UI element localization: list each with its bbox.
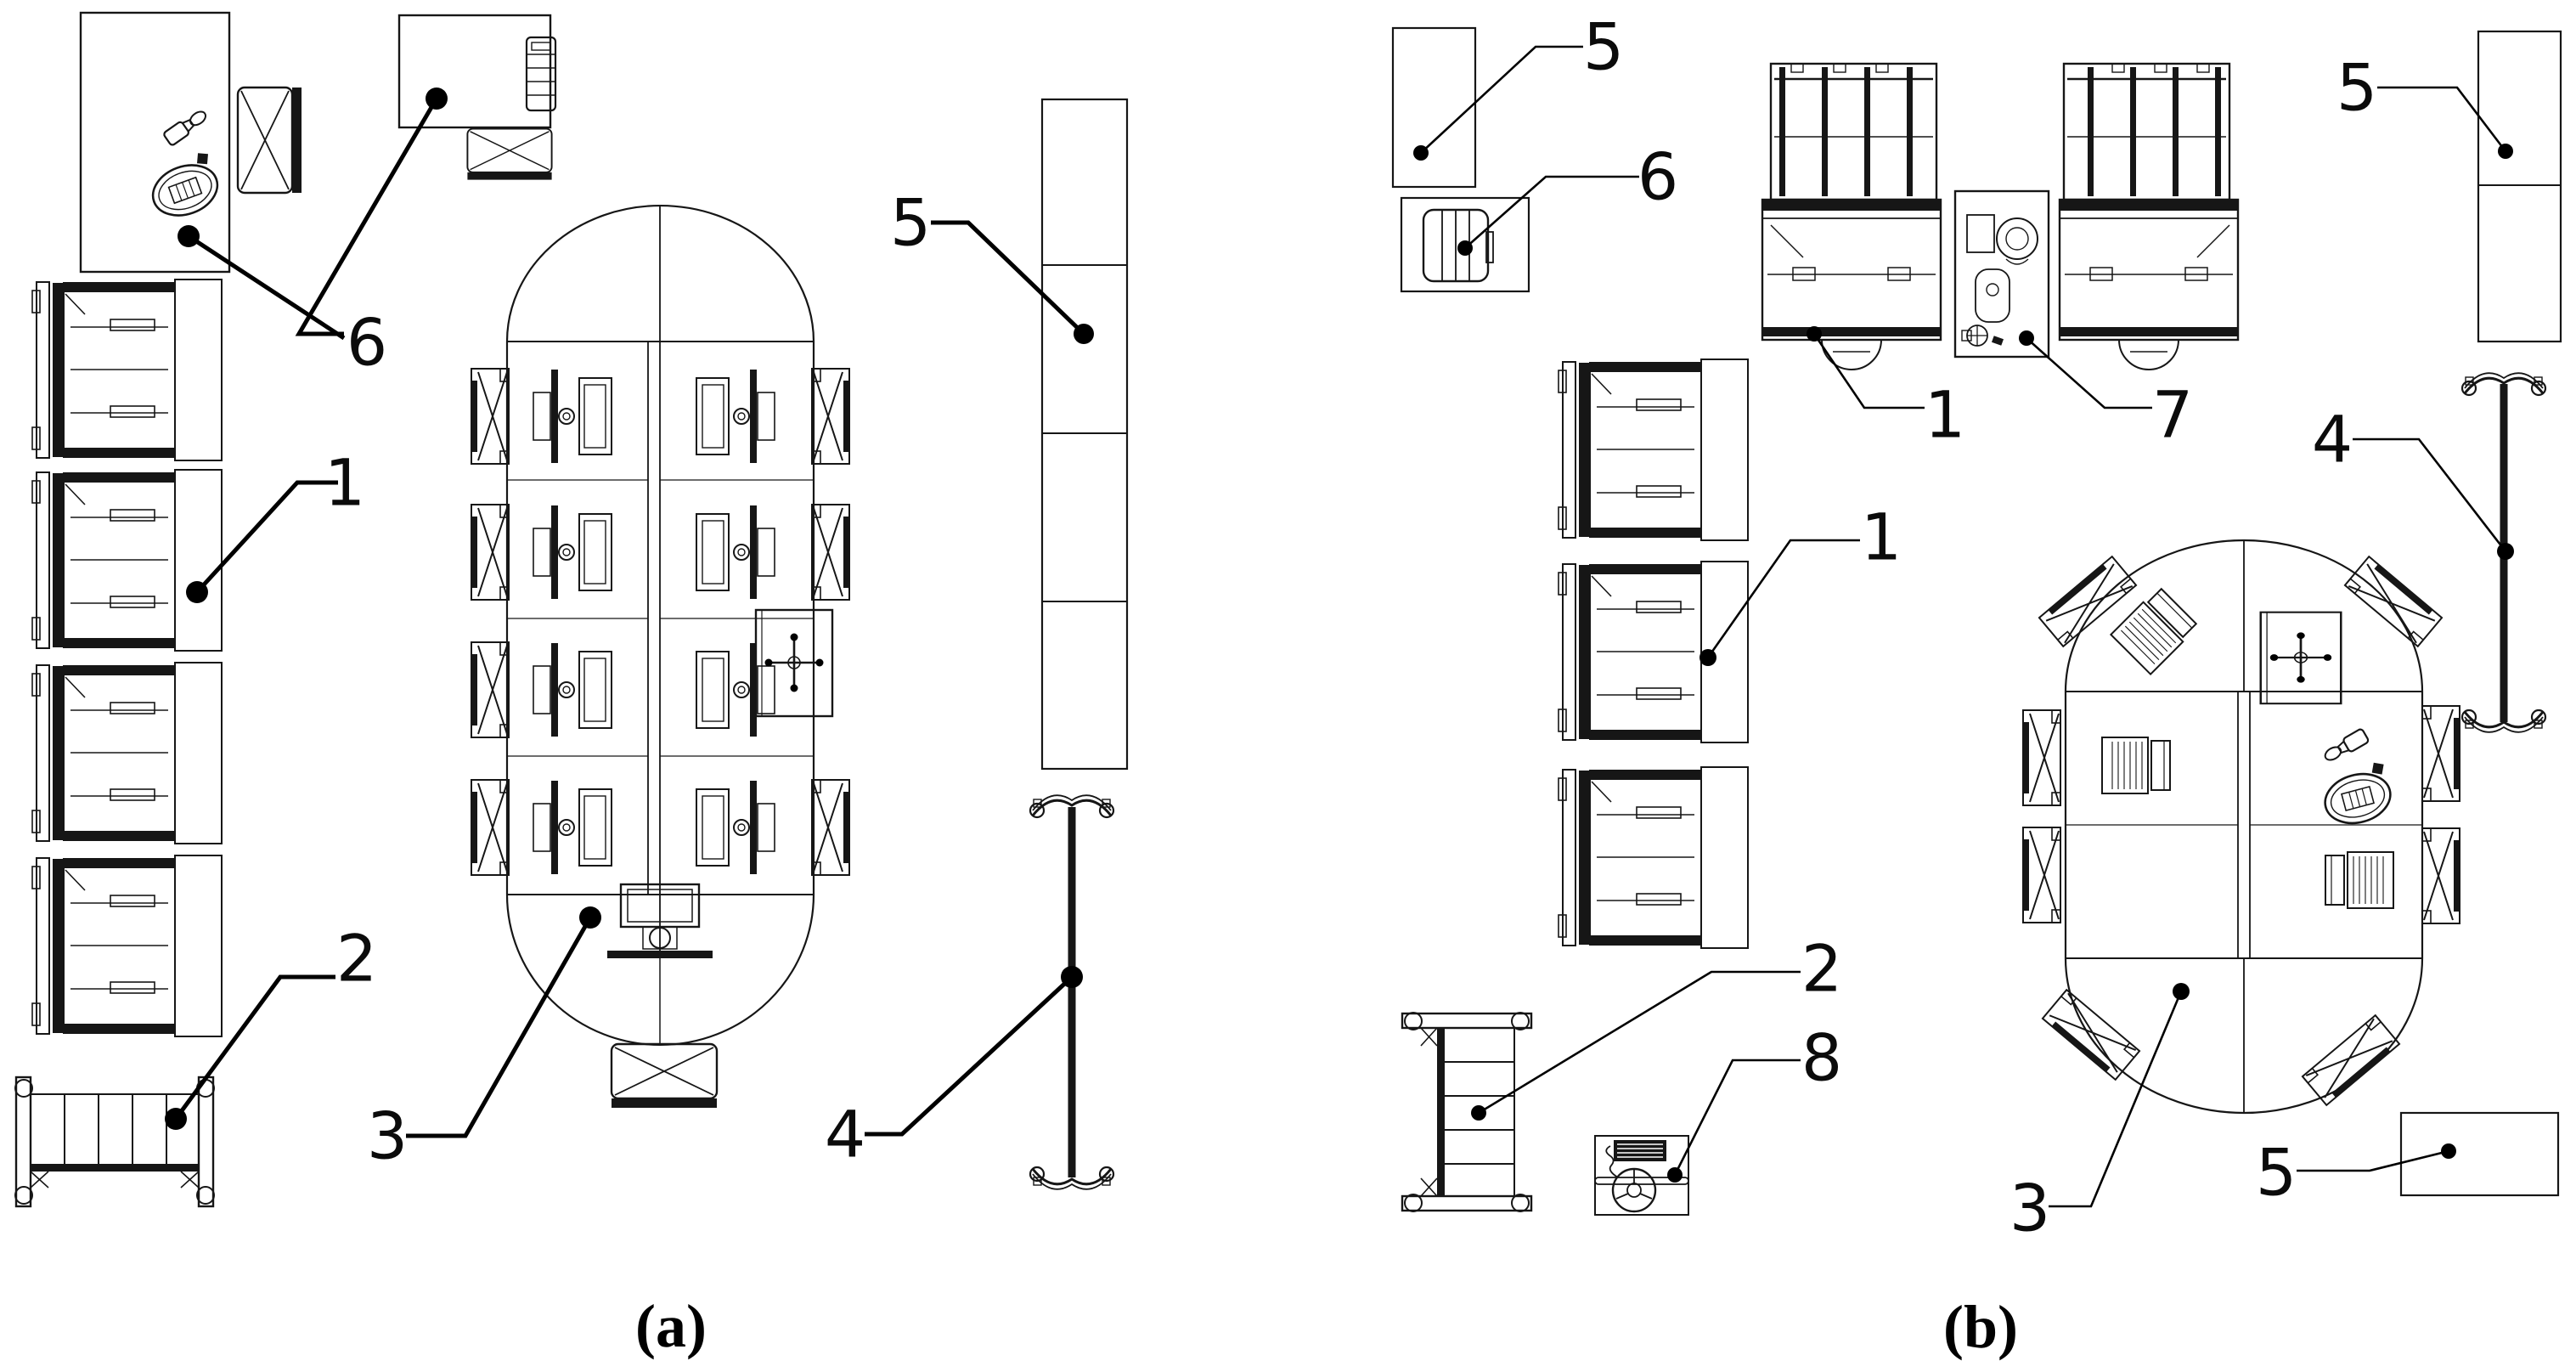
callout-equipment-desk: 8 (1667, 1020, 1842, 1183)
chair-handle-icon (1822, 340, 1881, 370)
callout-cabinet-bottom-right: 5 (2256, 1135, 2456, 1211)
chair-icon (812, 780, 849, 875)
bottle-icon (2322, 728, 2370, 765)
chair-icon (471, 642, 509, 737)
cot-icon (15, 1077, 214, 1206)
shelf-unit-icon (2064, 64, 2229, 200)
desk-unit-icon (1762, 200, 1941, 340)
chair-icon (2043, 990, 2139, 1080)
callout-label: 5 (1583, 9, 1624, 85)
panel-a-caption: (a) (635, 1292, 707, 1360)
bed-unit-icon (32, 279, 222, 460)
laptop-icon (2111, 586, 2198, 674)
presenter-chair-icon (612, 1044, 717, 1108)
laptop-icon (2102, 737, 2170, 793)
callout-mobile-divider: 4 (825, 966, 1083, 1172)
workstation-icon (533, 505, 612, 599)
cabinet (2478, 31, 2561, 342)
callout-label: 2 (336, 921, 377, 997)
workstation-icon (696, 781, 775, 874)
callout-label: 5 (2256, 1135, 2297, 1211)
office-chair-icon (238, 88, 302, 193)
callout-label: 1 (1925, 377, 1965, 453)
sanitary-unit-icon (1955, 191, 2049, 357)
panel-a: 6 1 2 (15, 13, 1127, 1360)
callout-desk-units: 1 (1807, 326, 1965, 453)
headset-icon (2318, 760, 2397, 830)
chair-handle-icon (2119, 340, 2179, 370)
figure-canvas: 6 1 2 (0, 0, 2576, 1372)
oval-table (507, 206, 814, 1045)
bed-unit-icon (1559, 767, 1748, 948)
mobile-divider (1030, 795, 1113, 1189)
callout-label: 4 (2312, 402, 2353, 477)
panel-b: 5 6 1 7 (1393, 9, 2561, 1362)
bed-unit-icon (32, 855, 222, 1036)
chair-icon (2023, 827, 2060, 923)
cabinet (1393, 28, 1475, 187)
callout-label: 5 (2336, 50, 2377, 126)
shelf-unit-icon (1771, 64, 1936, 200)
callout-label: 1 (1861, 500, 1902, 575)
cabinet (2401, 1113, 2558, 1195)
chair-icon (471, 505, 509, 600)
workstation-icon (533, 643, 612, 737)
chair-icon (812, 505, 849, 600)
bed-unit-icon (1559, 359, 1748, 540)
chair-icon (2303, 1015, 2399, 1105)
chair-icon (2039, 556, 2136, 646)
callout-staff-desks: 6 (178, 88, 448, 381)
staff-desk (399, 15, 550, 127)
callout-label: 6 (1637, 139, 1678, 215)
panel-b-caption: (b) (1943, 1293, 2018, 1361)
chair-icon (471, 780, 509, 875)
office-chair-icon (467, 129, 551, 180)
callout-mobile-divider: 4 (2312, 402, 2514, 561)
callout-label: 5 (890, 185, 931, 261)
callout-label: 3 (367, 1098, 408, 1174)
callout-sanitary-unit: 7 (2019, 330, 2193, 453)
callout-label: 4 (825, 1097, 865, 1172)
chair-icon (471, 369, 509, 464)
laptop-icon (2325, 852, 2393, 908)
callout-bed-units: 1 (186, 445, 365, 604)
callout-label: 8 (1801, 1020, 1842, 1096)
callout-oval-table: 3 (367, 906, 601, 1174)
floorplan-figure: 6 1 2 (0, 0, 2576, 1372)
workstation-icon (696, 505, 775, 599)
callout-cot: 2 (165, 921, 377, 1131)
callout-label: 3 (2010, 1171, 2050, 1246)
chair-icon (2345, 556, 2442, 646)
callout-label: 2 (1801, 931, 1842, 1007)
bed-unit-icon (32, 470, 222, 651)
side-table-icon (2261, 613, 2342, 704)
chair-icon (2422, 706, 2460, 801)
callout-label: 6 (347, 305, 387, 381)
chair-icon (2023, 710, 2060, 805)
desk-unit-icon (2060, 200, 2238, 340)
callout-oval-table: 3 (2010, 983, 2190, 1246)
callout-label: 7 (2152, 377, 2193, 453)
bottle-icon (163, 107, 210, 146)
cot-icon (1402, 1013, 1531, 1211)
bed-unit-icon (32, 663, 222, 844)
workstation-icon (533, 370, 612, 463)
workstation-icon (696, 370, 775, 463)
bed-unit-icon (1559, 562, 1748, 742)
staff-desk (81, 13, 229, 272)
headset-icon (144, 150, 225, 224)
side-table-icon (756, 610, 832, 716)
chair-icon (2422, 828, 2460, 923)
workstation-icon (696, 643, 775, 737)
chair-icon (812, 369, 849, 464)
callout-cabinet-top-left: 5 (1413, 9, 1624, 161)
callout-bed-units: 1 (1699, 500, 1902, 667)
workstation-icon (533, 781, 612, 874)
callout-label: 1 (324, 445, 365, 521)
tall-cabinet (1042, 99, 1127, 769)
callout-cabinet-top-right: 5 (2336, 50, 2513, 160)
